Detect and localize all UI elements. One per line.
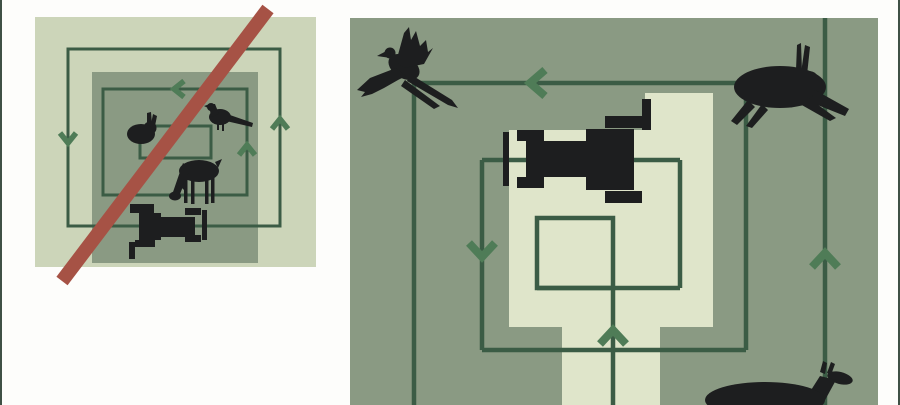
panel-correct-outward-mowing [350, 18, 878, 405]
left-edge-border [0, 0, 2, 405]
mowing-diagram [0, 0, 900, 405]
illustration-canvas [0, 0, 900, 405]
panel-incorrect-spiral-mowing [35, 9, 316, 281]
